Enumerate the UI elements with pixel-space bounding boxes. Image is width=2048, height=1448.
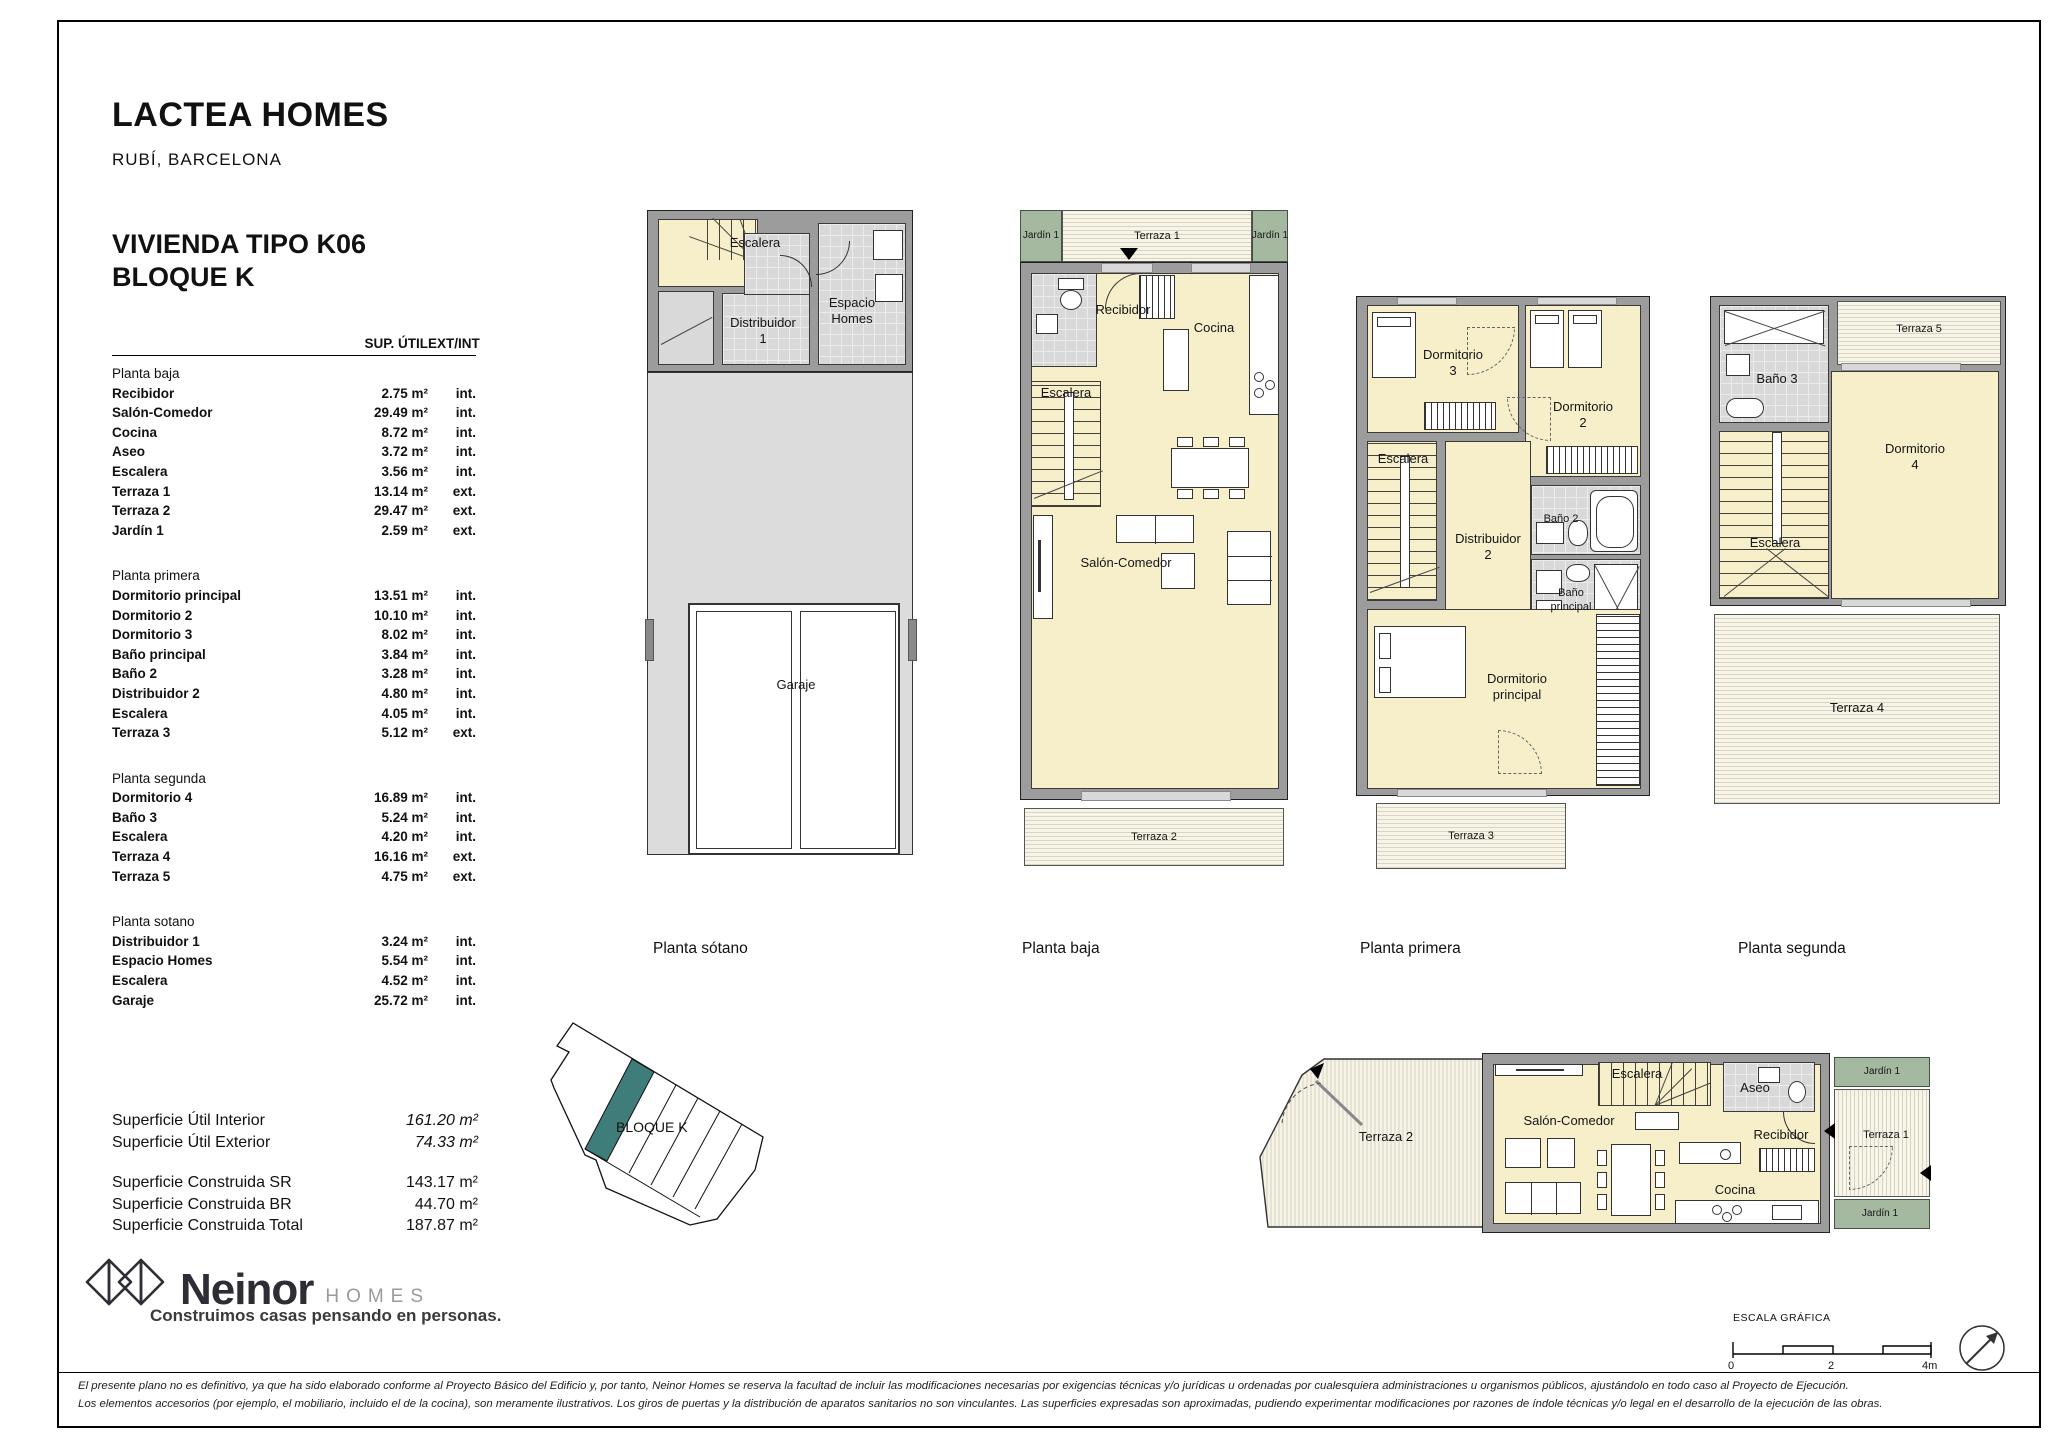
room-label-dorm4-num: 4 bbox=[1911, 458, 1918, 472]
equipment-box bbox=[873, 230, 903, 260]
table-row: Terraza 3 5.12 m² ext. bbox=[112, 723, 476, 743]
section-title: Planta sotano bbox=[112, 912, 476, 932]
summary-construida: Superficie Construida SR 143.17 m² Super… bbox=[112, 1172, 478, 1237]
summary-label: Superficie Construida Total bbox=[112, 1215, 348, 1237]
plan-baja-horizontal: Terraza 2 bbox=[1258, 1053, 1930, 1233]
room-label-dorm2: Dormitorio bbox=[1553, 400, 1613, 414]
table-row: Escalera 3.56 m² int. bbox=[112, 462, 476, 482]
plan-caption-sotano: Planta sótano bbox=[653, 940, 748, 958]
wardrobe bbox=[1596, 614, 1640, 786]
shower bbox=[1724, 310, 1824, 344]
row-type: int. bbox=[428, 645, 476, 665]
garage-door bbox=[688, 603, 900, 855]
room-label-dorm3-num: 3 bbox=[1449, 364, 1456, 378]
room-label-cocina: Cocina bbox=[1194, 321, 1234, 335]
row-label: Escalera bbox=[112, 704, 340, 724]
stairs bbox=[1719, 431, 1829, 599]
equipment-box bbox=[875, 274, 903, 302]
table-row: Terraza 2 29.47 m² ext. bbox=[112, 501, 476, 521]
summary-row: Superficie Útil Interior 161.20 m² bbox=[112, 1110, 478, 1132]
row-label: Baño 3 bbox=[112, 808, 340, 828]
row-type: int. bbox=[428, 442, 476, 462]
scale-tick-4: 4m bbox=[1922, 1360, 1937, 1372]
summary-value: 161.20 m² bbox=[348, 1110, 478, 1132]
door-swing bbox=[1507, 397, 1551, 441]
room-label-bano2: Baño 2 bbox=[1544, 512, 1579, 526]
armchair bbox=[1227, 531, 1271, 605]
summary-label: Superficie Construida BR bbox=[112, 1194, 348, 1216]
bed bbox=[1568, 310, 1602, 368]
primera-walls: Dormitorio 3 Dormitorio 2 Escalera Distr… bbox=[1356, 296, 1650, 796]
table-row: Escalera 4.20 m² int. bbox=[112, 827, 476, 847]
room-label-aseo: Aseo bbox=[1740, 1081, 1770, 1095]
table-section-baja: Planta baja Recibidor 2.75 m² int. Salón… bbox=[112, 364, 476, 540]
chair bbox=[1655, 1194, 1665, 1210]
sofa bbox=[1116, 515, 1194, 543]
table-row: Dormitorio 4 16.89 m² int. bbox=[112, 788, 476, 808]
row-type: ext. bbox=[428, 847, 476, 867]
summary-row: Superficie Construida SR 143.17 m² bbox=[112, 1172, 478, 1194]
table-row: Dormitorio principal 13.51 m² int. bbox=[112, 586, 476, 606]
room-label-bano3: Baño 3 bbox=[1756, 372, 1797, 386]
wc bbox=[1566, 564, 1590, 582]
entrance-arrow-icon bbox=[1920, 1165, 1931, 1181]
unit-type-line1: VIVIENDA TIPO K06 bbox=[112, 228, 366, 261]
dormitorio-3 bbox=[1367, 305, 1519, 433]
plan-sheet: LACTEA HOMES RUBÍ, BARCELONA VIVIENDA TI… bbox=[0, 0, 2048, 1448]
row-value: 4.52 m² bbox=[340, 971, 428, 991]
room-label-recibidor: Recibidor bbox=[1096, 303, 1151, 317]
row-label: Jardín 1 bbox=[112, 521, 340, 541]
table-section-sotano: Planta sotano Distribuidor 1 3.24 m² int… bbox=[112, 912, 476, 1010]
kitchen-island bbox=[1679, 1142, 1741, 1164]
bano-3 bbox=[1719, 305, 1829, 423]
row-label: Terraza 5 bbox=[112, 867, 340, 887]
table-row: Escalera 4.52 m² int. bbox=[112, 971, 476, 991]
row-type: int. bbox=[428, 586, 476, 606]
table-row: Salón-Comedor 29.49 m² int. bbox=[112, 403, 476, 423]
row-value: 3.24 m² bbox=[340, 932, 428, 952]
bed bbox=[1530, 310, 1564, 368]
room-label-dorm2-num: 2 bbox=[1579, 416, 1586, 430]
table-row: Dormitorio 2 10.10 m² int. bbox=[112, 606, 476, 626]
table-row: Garaje 25.72 m² int. bbox=[112, 991, 476, 1011]
row-value: 8.02 m² bbox=[340, 625, 428, 645]
dining-table bbox=[1611, 1144, 1651, 1216]
disclaimer-line1: El presente plano no es definitivo, ya q… bbox=[78, 1380, 1998, 1392]
wc bbox=[1726, 398, 1764, 418]
room-label-terraza4: Terraza 4 bbox=[1830, 701, 1884, 715]
row-value: 25.72 m² bbox=[340, 991, 428, 1011]
room-label-banop: Baño bbox=[1558, 586, 1584, 600]
graphic-scale bbox=[1731, 1334, 1941, 1376]
table-row: Jardín 1 2.59 m² ext. bbox=[112, 521, 476, 541]
row-type: int. bbox=[428, 625, 476, 645]
room-label-cocina: Cocina bbox=[1715, 1183, 1755, 1197]
plan-baja: Jardín 1 Terraza 1 Jardín 1 bbox=[1020, 210, 1288, 866]
row-value: 3.84 m² bbox=[340, 645, 428, 665]
project-location: RUBÍ, BARCELONA bbox=[112, 150, 282, 170]
room-label-terraza2: Terraza 2 bbox=[1359, 1130, 1413, 1144]
stair-cabinet bbox=[1635, 1112, 1679, 1130]
sink bbox=[1036, 314, 1058, 334]
room-label-garaje: Garaje bbox=[776, 678, 815, 692]
table-row: Recibidor 2.75 m² int. bbox=[112, 384, 476, 404]
summary-row: Superficie Construida BR 44.70 m² bbox=[112, 1194, 478, 1216]
table-row: Baño principal 3.84 m² int. bbox=[112, 645, 476, 665]
row-value: 2.75 m² bbox=[340, 384, 428, 404]
logo-brand: Neinor bbox=[180, 1270, 313, 1310]
bathtub bbox=[1590, 490, 1638, 552]
row-type: int. bbox=[428, 664, 476, 684]
sotano-walls: Escalera Distribuidor 1 Espacio Homes bbox=[647, 210, 913, 372]
section-rows: Dormitorio 4 16.89 m² int. Baño 3 5.24 m… bbox=[112, 788, 476, 886]
wc-tank bbox=[1058, 278, 1084, 290]
unit-type-title: VIVIENDA TIPO K06 BLOQUE K bbox=[112, 228, 366, 294]
section-rows: Distribuidor 1 3.24 m² int. Espacio Home… bbox=[112, 932, 476, 1010]
summary-util: Superficie Útil Interior 161.20 m² Super… bbox=[112, 1110, 478, 1153]
dining-table bbox=[1171, 448, 1249, 488]
bed bbox=[1372, 312, 1416, 378]
chair bbox=[1655, 1150, 1665, 1166]
row-label: Garaje bbox=[112, 991, 340, 1011]
plan-segunda: Terraza 5 Baño 3 Dormitorio 4 Escalera T… bbox=[1710, 296, 2006, 816]
section-rows: Dormitorio principal 13.51 m² int. Dormi… bbox=[112, 586, 476, 743]
table-row: Distribuidor 1 3.24 m² int. bbox=[112, 932, 476, 952]
garage-ramp: Garaje bbox=[647, 372, 913, 855]
room-label-salon: Salón-Comedor bbox=[1080, 556, 1171, 570]
sofa bbox=[1505, 1182, 1581, 1214]
row-type: ext. bbox=[428, 482, 476, 502]
understair-room bbox=[658, 291, 714, 365]
row-label: Espacio Homes bbox=[112, 951, 340, 971]
chair bbox=[1229, 489, 1245, 499]
row-value: 3.28 m² bbox=[340, 664, 428, 684]
row-type: int. bbox=[428, 788, 476, 808]
chair bbox=[1597, 1172, 1607, 1188]
row-value: 5.24 m² bbox=[340, 808, 428, 828]
room-label-dormp: Dormitorio bbox=[1487, 672, 1547, 686]
plan-caption-primera: Planta primera bbox=[1360, 940, 1461, 958]
horizontal-walls: Salón-Comedor Escalera Aseo Recibidor Co… bbox=[1482, 1053, 1830, 1233]
door-swing bbox=[1849, 1146, 1893, 1190]
section-rows: Recibidor 2.75 m² int. Salón-Comedor 29.… bbox=[112, 384, 476, 541]
chair bbox=[1229, 437, 1245, 447]
chair bbox=[1597, 1150, 1607, 1166]
closet bbox=[1759, 1148, 1815, 1172]
row-type: int. bbox=[428, 808, 476, 828]
row-type: int. bbox=[428, 403, 476, 423]
scale-tick-0: 0 bbox=[1728, 1360, 1734, 1372]
room-label-escalera: Escalera bbox=[730, 236, 781, 250]
room-label-jardin-top: Jardín 1 bbox=[1864, 1065, 1900, 1079]
dormitorio-2 bbox=[1525, 305, 1641, 477]
row-type: ext. bbox=[428, 723, 476, 743]
room-label-terraza3: Terraza 3 bbox=[1448, 829, 1494, 843]
row-type: int. bbox=[428, 932, 476, 952]
scale-tick-2: 2 bbox=[1828, 1360, 1834, 1372]
logo-tagline: Construimos casas pensando en personas. bbox=[150, 1306, 501, 1326]
row-label: Escalera bbox=[112, 462, 340, 482]
summary-label: Superficie Construida SR bbox=[112, 1172, 348, 1194]
plan-sotano: Escalera Distribuidor 1 Espacio Homes Ga… bbox=[647, 210, 913, 855]
chair bbox=[1597, 1194, 1607, 1210]
room-label-terraza1: Terraza 1 bbox=[1134, 229, 1180, 243]
room-label-dorm4: Dormitorio bbox=[1885, 442, 1945, 456]
table-row: Baño 2 3.28 m² int. bbox=[112, 664, 476, 684]
room-label-jardin2: Jardín 1 bbox=[1252, 229, 1288, 243]
col-ext-int: EXT/INT bbox=[428, 336, 476, 351]
plan-caption-baja: Planta baja bbox=[1022, 940, 1100, 958]
col-sup-util: SUP. ÚTIL bbox=[340, 336, 428, 351]
room-label-escalera: Escalera bbox=[1750, 536, 1801, 550]
chair bbox=[1655, 1172, 1665, 1188]
row-value: 4.20 m² bbox=[340, 827, 428, 847]
aseo bbox=[1031, 273, 1097, 367]
table-row: Aseo 3.72 m² int. bbox=[112, 442, 476, 462]
row-value: 4.75 m² bbox=[340, 867, 428, 887]
chair bbox=[1203, 489, 1219, 499]
row-value: 4.80 m² bbox=[340, 684, 428, 704]
bed bbox=[1374, 626, 1466, 698]
table-row: Terraza 5 4.75 m² ext. bbox=[112, 867, 476, 887]
site-key-label: BLOQUE K bbox=[616, 1119, 688, 1135]
row-label: Terraza 1 bbox=[112, 482, 340, 502]
disclaimer-line2: Los elementos accesorios (por ejemplo, e… bbox=[78, 1398, 1998, 1410]
wc bbox=[1060, 290, 1082, 310]
entrance-arrow-icon bbox=[1824, 1123, 1835, 1139]
row-type: int. bbox=[428, 704, 476, 724]
room-label-salon: Salón-Comedor bbox=[1523, 1114, 1614, 1128]
row-label: Dormitorio principal bbox=[112, 586, 340, 606]
row-label: Baño 2 bbox=[112, 664, 340, 684]
row-label: Salón-Comedor bbox=[112, 403, 340, 423]
wardrobe bbox=[1546, 446, 1638, 474]
row-label: Aseo bbox=[112, 442, 340, 462]
kitchen-counter bbox=[1249, 275, 1279, 415]
armchair bbox=[1505, 1138, 1541, 1168]
room-label-terraza1: Terraza 1 bbox=[1863, 1128, 1909, 1142]
row-value: 16.16 m² bbox=[340, 847, 428, 867]
row-value: 3.72 m² bbox=[340, 442, 428, 462]
summary-label: Superficie Útil Exterior bbox=[112, 1132, 348, 1154]
summary-value: 44.70 m² bbox=[348, 1194, 478, 1216]
row-label: Baño principal bbox=[112, 645, 340, 665]
chair bbox=[1177, 489, 1193, 499]
entrance-arrow-icon bbox=[1120, 248, 1138, 260]
row-value: 29.47 m² bbox=[340, 501, 428, 521]
row-label: Terraza 2 bbox=[112, 501, 340, 521]
table-row: Dormitorio 3 8.02 m² int. bbox=[112, 625, 476, 645]
room-label-escalera: Escalera bbox=[1041, 386, 1092, 400]
door-swing bbox=[1498, 730, 1542, 774]
row-type: int. bbox=[428, 684, 476, 704]
row-label: Recibidor bbox=[112, 384, 340, 404]
chair bbox=[1177, 437, 1193, 447]
room-label-distribuidor-num: 1 bbox=[759, 332, 766, 346]
row-label: Cocina bbox=[112, 423, 340, 443]
row-type: ext. bbox=[428, 521, 476, 541]
row-value: 13.51 m² bbox=[340, 586, 428, 606]
site-key-plan: BLOQUE K bbox=[540, 1010, 800, 1250]
room-label-terraza5: Terraza 5 bbox=[1896, 322, 1942, 336]
row-label: Dormitorio 4 bbox=[112, 788, 340, 808]
room-label-distribuidor2-num: 2 bbox=[1484, 548, 1491, 562]
side-table bbox=[1547, 1138, 1575, 1168]
room-label-espacio2: Homes bbox=[831, 312, 872, 326]
table-section-segunda: Planta segunda Dormitorio 4 16.89 m² int… bbox=[112, 769, 476, 887]
row-type: int. bbox=[428, 423, 476, 443]
table-row: Espacio Homes 5.54 m² int. bbox=[112, 951, 476, 971]
row-label: Terraza 3 bbox=[112, 723, 340, 743]
row-type: int. bbox=[428, 991, 476, 1011]
unit-type-line2: BLOQUE K bbox=[112, 261, 366, 294]
sink bbox=[1726, 354, 1750, 376]
row-value: 4.05 m² bbox=[340, 704, 428, 724]
wardrobe bbox=[1424, 402, 1496, 430]
summary-value: 74.33 m² bbox=[348, 1132, 478, 1154]
summary-value: 143.17 m² bbox=[348, 1172, 478, 1194]
room-label-jardin-bottom: Jardín 1 bbox=[1862, 1207, 1898, 1221]
segunda-walls: Terraza 5 Baño 3 Dormitorio 4 Escalera bbox=[1710, 296, 2006, 606]
summary-label: Superficie Útil Interior bbox=[112, 1110, 348, 1132]
row-label: Dormitorio 3 bbox=[112, 625, 340, 645]
room-label-espacio: Espacio bbox=[829, 296, 875, 310]
room-label-recibidor: Recibidor bbox=[1754, 1128, 1809, 1142]
room-label-escalera: Escalera bbox=[1378, 452, 1429, 466]
table-row: Baño 3 5.24 m² int. bbox=[112, 808, 476, 828]
wc bbox=[1788, 1081, 1806, 1103]
row-label: Escalera bbox=[112, 827, 340, 847]
dormitorio-4 bbox=[1831, 371, 1999, 599]
room-label-banop2: principal bbox=[1551, 600, 1592, 614]
section-title: Planta primera bbox=[112, 566, 476, 586]
tv-unit bbox=[1495, 1064, 1583, 1076]
scale-title: ESCALA GRÁFICA bbox=[1733, 1312, 1830, 1324]
section-title: Planta segunda bbox=[112, 769, 476, 789]
row-type: ext. bbox=[428, 867, 476, 887]
room-label-distribuidor: Distribuidor bbox=[730, 316, 796, 330]
table-section-primera: Planta primera Dormitorio principal 13.5… bbox=[112, 566, 476, 742]
areas-table-header: SUP. ÚTIL EXT/INT bbox=[112, 336, 476, 356]
summary-row: Superficie Útil Exterior 74.33 m² bbox=[112, 1132, 478, 1154]
room-label-dormp2: principal bbox=[1493, 688, 1541, 702]
kitchen-counter bbox=[1675, 1200, 1819, 1224]
row-value: 10.10 m² bbox=[340, 606, 428, 626]
section-title: Planta baja bbox=[112, 364, 476, 384]
row-label: Terraza 4 bbox=[112, 847, 340, 867]
room-label-escalera: Escalera bbox=[1612, 1067, 1663, 1081]
row-type: int. bbox=[428, 606, 476, 626]
room-label-terraza2: Terraza 2 bbox=[1131, 830, 1177, 844]
north-compass-icon bbox=[1952, 1308, 2012, 1380]
row-value: 5.12 m² bbox=[340, 723, 428, 743]
distribuidor-2 bbox=[1445, 441, 1531, 611]
row-type: int. bbox=[428, 384, 476, 404]
table-row: Distribuidor 2 4.80 m² int. bbox=[112, 684, 476, 704]
tv-unit bbox=[1033, 515, 1053, 619]
row-value: 29.49 m² bbox=[340, 403, 428, 423]
table-row: Terraza 4 16.16 m² ext. bbox=[112, 847, 476, 867]
row-label: Distribuidor 1 bbox=[112, 932, 340, 952]
row-label: Dormitorio 2 bbox=[112, 606, 340, 626]
room-label-distribuidor2: Distribuidor bbox=[1455, 532, 1521, 546]
row-value: 5.54 m² bbox=[340, 951, 428, 971]
sink bbox=[1772, 1205, 1802, 1220]
chair bbox=[1203, 437, 1219, 447]
row-label: Escalera bbox=[112, 971, 340, 991]
summary-value: 187.87 m² bbox=[348, 1215, 478, 1237]
baja-walls: Recibidor Cocina Escalera Salón-Comedor bbox=[1020, 262, 1288, 800]
table-row: Cocina 8.72 m² int. bbox=[112, 423, 476, 443]
project-title: LACTEA HOMES bbox=[112, 96, 389, 135]
stairs bbox=[658, 219, 758, 287]
row-type: int. bbox=[428, 827, 476, 847]
neinor-logo-icon bbox=[84, 1250, 166, 1310]
row-type: int. bbox=[428, 971, 476, 991]
row-type: int. bbox=[428, 951, 476, 971]
row-value: 3.56 m² bbox=[340, 462, 428, 482]
terraza-1 bbox=[1834, 1089, 1930, 1197]
areas-table: SUP. ÚTIL EXT/INT Planta baja Recibidor … bbox=[112, 336, 476, 1010]
plan-caption-segunda: Planta segunda bbox=[1738, 940, 1846, 958]
row-label: Distribuidor 2 bbox=[112, 684, 340, 704]
kitchen-island bbox=[1163, 329, 1189, 391]
plan-primera: Dormitorio 3 Dormitorio 2 Escalera Distr… bbox=[1356, 296, 1650, 881]
row-value: 13.14 m² bbox=[340, 482, 428, 502]
row-type: int. bbox=[428, 462, 476, 482]
room-label-dorm3: Dormitorio bbox=[1423, 348, 1483, 362]
table-row: Escalera 4.05 m² int. bbox=[112, 704, 476, 724]
table-row: Terraza 1 13.14 m² ext. bbox=[112, 482, 476, 502]
room-label-jardin: Jardín 1 bbox=[1023, 229, 1059, 243]
row-type: ext. bbox=[428, 501, 476, 521]
row-value: 2.59 m² bbox=[340, 521, 428, 541]
neinor-logo: Neinor HOMES bbox=[84, 1250, 430, 1310]
summary-row: Superficie Construida Total 187.87 m² bbox=[112, 1215, 478, 1237]
row-value: 8.72 m² bbox=[340, 423, 428, 443]
surface-summary: Superficie Útil Interior 161.20 m² Super… bbox=[112, 1110, 478, 1237]
row-value: 16.89 m² bbox=[340, 788, 428, 808]
